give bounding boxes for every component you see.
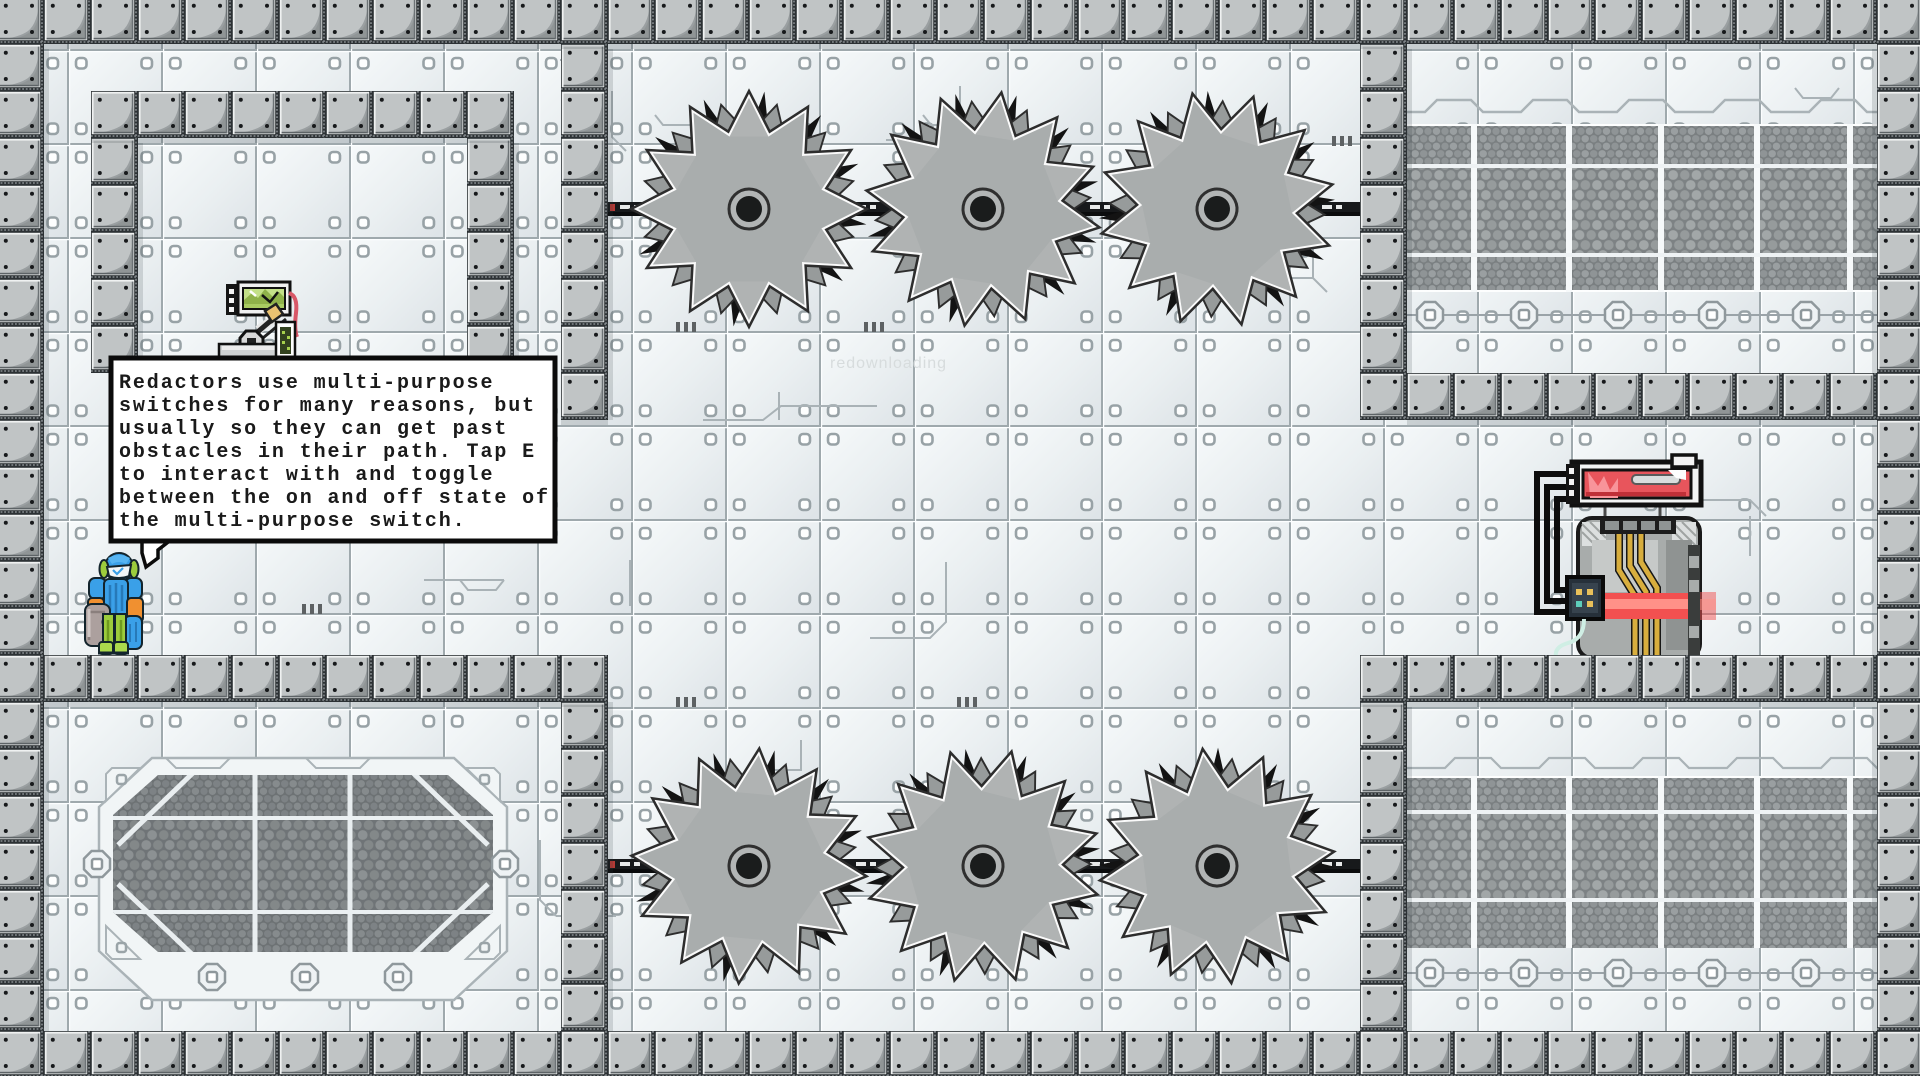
svg-text:redownloading: redownloading [830, 355, 947, 372]
svg-text:Redactors use multi-purposeswi: Redactors use multi-purposeswitches for … [119, 372, 550, 533]
